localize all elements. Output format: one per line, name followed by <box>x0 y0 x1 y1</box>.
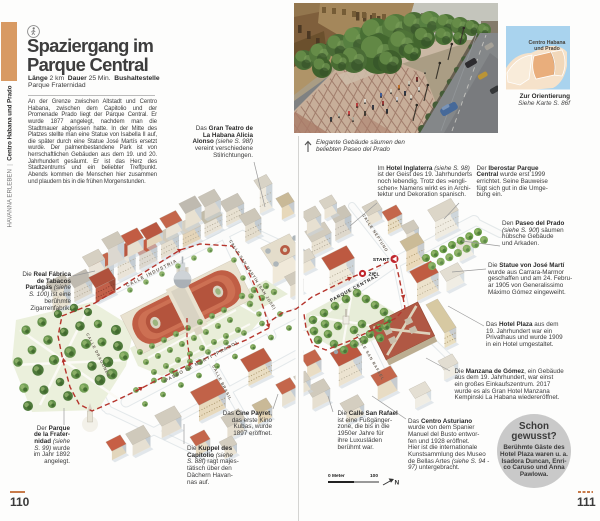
svg-text:und Prado: und Prado <box>534 46 560 52</box>
svg-text:N: N <box>395 480 400 487</box>
